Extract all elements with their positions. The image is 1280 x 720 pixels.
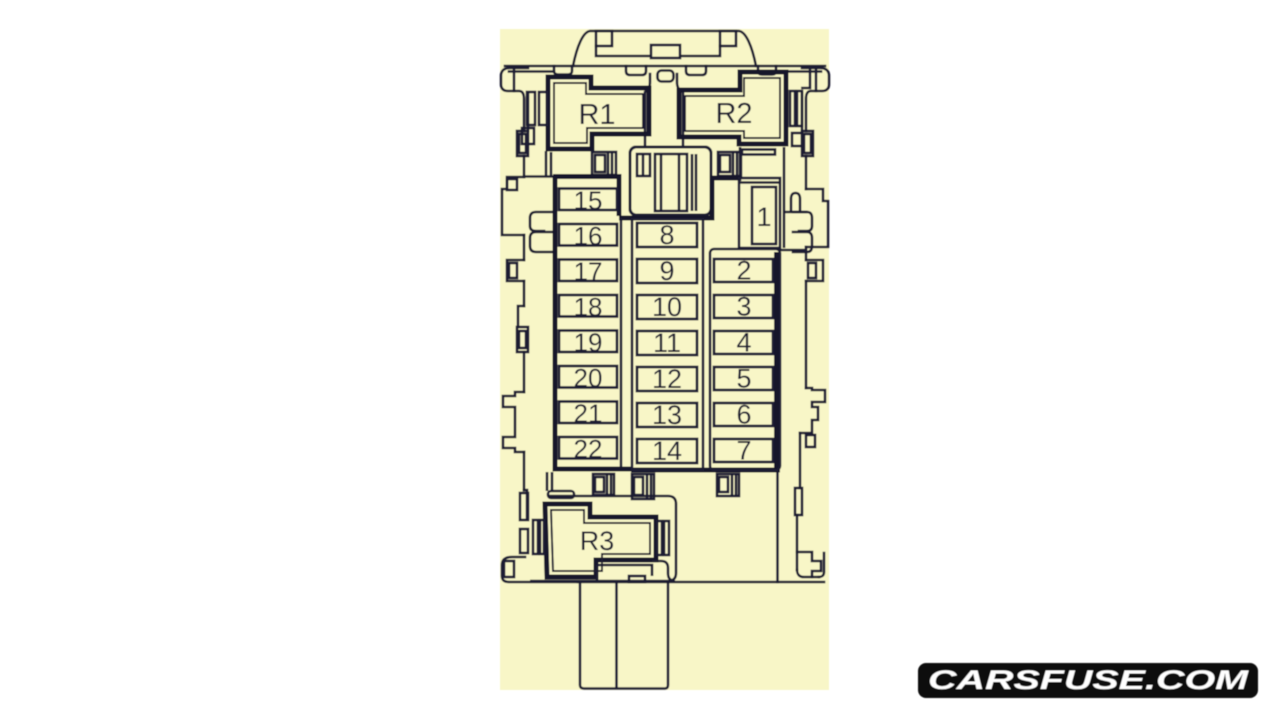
svg-text:16: 16 [574, 221, 603, 251]
svg-text:11: 11 [653, 328, 681, 358]
svg-text:22: 22 [574, 434, 603, 464]
svg-text:10: 10 [652, 292, 682, 322]
svg-text:4: 4 [736, 328, 751, 358]
svg-text:13: 13 [652, 400, 682, 430]
svg-text:1: 1 [756, 202, 771, 232]
svg-text:3: 3 [736, 292, 751, 322]
svg-text:R2: R2 [715, 98, 752, 130]
svg-text:14: 14 [652, 436, 682, 466]
svg-text:18: 18 [574, 292, 603, 322]
svg-text:20: 20 [574, 363, 603, 393]
svg-text:17: 17 [574, 257, 603, 287]
svg-text:6: 6 [736, 400, 751, 430]
svg-text:2: 2 [736, 256, 751, 286]
svg-text:7: 7 [736, 436, 751, 466]
svg-text:R3: R3 [580, 526, 615, 556]
svg-text:12: 12 [652, 364, 682, 394]
svg-text:21: 21 [574, 399, 603, 429]
svg-text:CARSFUSE.COM: CARSFUSE.COM [928, 665, 1249, 695]
svg-text:8: 8 [659, 220, 674, 250]
svg-text:9: 9 [659, 256, 674, 286]
svg-text:R1: R1 [578, 99, 615, 131]
svg-text:5: 5 [736, 364, 751, 394]
svg-text:15: 15 [574, 186, 603, 216]
svg-text:19: 19 [574, 328, 603, 358]
